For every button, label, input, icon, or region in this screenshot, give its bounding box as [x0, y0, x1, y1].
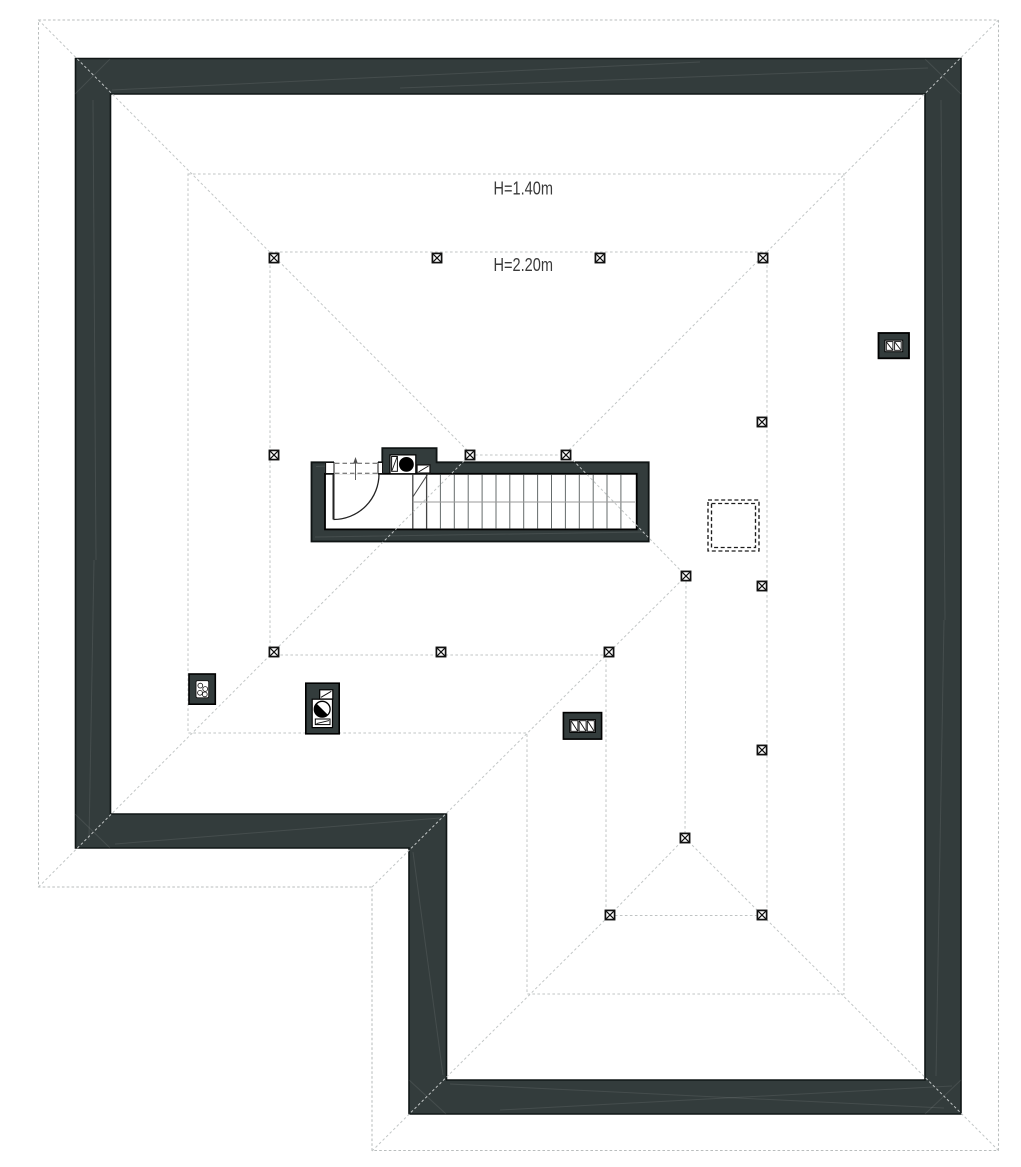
svg-text:H=1.40m: H=1.40m: [494, 178, 554, 199]
svg-text:H=2.20m: H=2.20m: [494, 254, 554, 275]
